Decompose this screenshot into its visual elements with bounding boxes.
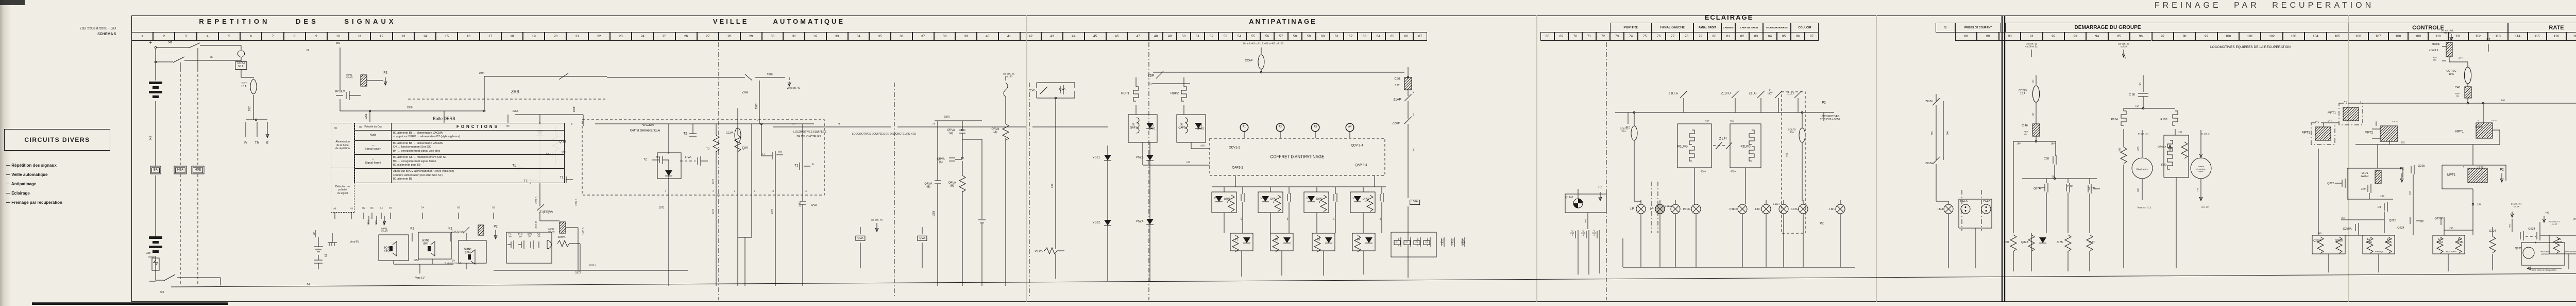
- component-label: R1LPD: [1740, 145, 1750, 149]
- component-label: CCAP: [1245, 59, 1252, 62]
- component-label: 1970: [767, 74, 772, 77]
- component-label: 1970: [944, 116, 950, 119]
- component-label: A3: [1311, 123, 1319, 132]
- component-label: P2: [1820, 222, 1823, 226]
- component-label: MPJ1 AV-AR: [346, 74, 352, 79]
- component-label: HVA: [685, 156, 691, 159]
- component-label: A18: [1200, 144, 1205, 147]
- component-label: 199: [2050, 142, 2055, 144]
- component-label: 74: [792, 122, 794, 125]
- component-label: EV F. de 0 à 3 Km/H: [445, 260, 462, 265]
- component-label: Q224: [2489, 230, 2496, 233]
- component-label: Z1AP: [1393, 98, 1401, 102]
- component-label: P2: [1598, 186, 1602, 189]
- component-label: 60s: [778, 150, 782, 153]
- component-label: VS: [1261, 198, 1264, 201]
- component-label: VEVA: [1035, 250, 1043, 253]
- component-label: Q225: [2327, 182, 2334, 185]
- component-label: 1957: [413, 260, 419, 263]
- component-label: C88: [2004, 241, 2009, 244]
- component-label: LOCOMOTIVES EQUIPEES: [793, 131, 826, 134]
- component-label: CCLFD 10A: [1788, 128, 1795, 134]
- component-label: Vers EV: [350, 241, 359, 244]
- component-label: 223A: [2361, 187, 2367, 190]
- component-label: RDP2: [1171, 92, 1179, 95]
- component-label: A8: [1380, 218, 1382, 220]
- component-label: 1973: [711, 209, 714, 214]
- component-label: P4: [1357, 239, 1360, 242]
- component-label: VS QAP1: [1148, 125, 1155, 131]
- component-label: DE DISJONCTEURS: [796, 136, 821, 139]
- component-label: 197: [2031, 112, 2034, 117]
- component-label: LOCOMOTIVES EQUIPEES DE DISJONCTEURS N 1…: [852, 133, 916, 136]
- component-label: Vers sch: [2201, 206, 2209, 209]
- component-label: C 85: [2057, 241, 2063, 244]
- component-label: 1979: [573, 106, 577, 112]
- component-label: Neutralisation: [2565, 251, 2576, 253]
- component-label: T2: [761, 153, 765, 156]
- component-label: Vers EV: [415, 277, 425, 280]
- ders-row: + Signal ferméB1 alimente C8 → fonctionn…: [355, 155, 564, 169]
- component-label: 254: [2477, 203, 2481, 205]
- component-label: VACMA: [642, 123, 654, 127]
- component-label: De sch. 2: [2201, 133, 2210, 136]
- component-label: ZMVA: [558, 236, 566, 239]
- ders-polarity-cell: + Signal fermé: [355, 155, 392, 168]
- component-label: 74: [306, 50, 309, 53]
- component-label: 491: [2509, 224, 2512, 228]
- component-label: 206: [2118, 148, 2121, 152]
- component-label: P4: [1423, 240, 1430, 245]
- component-label: EV 226B: [2385, 238, 2392, 245]
- component-label: SON1 (SF): [422, 239, 430, 246]
- component-label: Z1 LCT: [1768, 90, 1772, 96]
- component-label: HBA: [175, 167, 185, 173]
- component-label: Q230B: [2434, 217, 2443, 220]
- ders-function-cell: B1 alimente C8 → fonctionnement Son SF B…: [392, 155, 564, 168]
- component-label: L1EV: [1665, 205, 1671, 208]
- component-label: 343: [150, 136, 153, 140]
- component-label: BA: [151, 167, 160, 173]
- component-label: Z1LFD: [1721, 92, 1731, 95]
- component-label: EV 221B: [2456, 238, 2463, 245]
- component-label: 1975 B: [534, 221, 537, 229]
- component-label: 1954: [367, 220, 369, 226]
- component-label: Q PAT 3: [1581, 230, 1585, 237]
- component-label: 654A: [1701, 170, 1706, 172]
- component-label: CCT 10 A.: [241, 83, 247, 89]
- component-label: 201: [2052, 175, 2056, 178]
- component-label: 342: [168, 42, 172, 45]
- ders-polarity-cell: — Signal ouvert: [355, 141, 392, 154]
- component-label: ZRS: [511, 89, 519, 94]
- component-label: S-5P: [1395, 84, 1400, 87]
- component-label: 1: [2360, 101, 2361, 104]
- component-label: R103: [2160, 118, 2167, 121]
- ders-side-labels: Alimentation de la boîte de répétition D…: [331, 123, 354, 213]
- component-label: De sch.461 col.113, 462 et 463 col.108: [1243, 42, 1283, 44]
- ders-side-bottom: Détection de polarité du signal: [331, 168, 354, 213]
- component-label: 1955: [375, 220, 377, 226]
- component-label: 68: [314, 232, 317, 235]
- component-label: 74: [837, 122, 840, 125]
- component-label: B2: [362, 206, 365, 209]
- component-label: A6: [1287, 218, 1290, 220]
- component-label: 1 à 18: [2490, 120, 2496, 122]
- component-label: L1TH: [1791, 208, 1798, 211]
- component-label: CCVA: [726, 132, 734, 135]
- component-label: A 0: [2344, 101, 2347, 104]
- ders-function-table: Polarité du Cra FONCTIONS NulleB1 alimen…: [354, 123, 565, 183]
- component-label: 60s.: [656, 155, 661, 158]
- component-label: EV 226A: [2366, 238, 2372, 245]
- component-label: 1984: [479, 72, 484, 75]
- component-label: 650: [336, 42, 340, 45]
- component-label: Q39: [742, 147, 748, 150]
- component-label: Q225: [2515, 247, 2521, 250]
- component-label: R1LPG: [1677, 145, 1688, 149]
- component-label: 663: [1785, 153, 1788, 157]
- component-label: A19: [1585, 219, 1587, 222]
- component-label: TM: [255, 141, 260, 145]
- component-label: P3: [1317, 239, 1320, 242]
- component-label: P2: [494, 225, 497, 229]
- ders-polarity-cell: Nulle: [355, 131, 392, 140]
- component-label: Q225: [2418, 165, 2425, 168]
- component-label: A3: [350, 207, 353, 210]
- component-label: QPAT 2: [1270, 198, 1277, 204]
- component-label: Z LPI: [1719, 137, 1726, 141]
- component-label: Sens relais de récupération: [2532, 269, 2557, 272]
- component-label: 1988: [933, 211, 936, 216]
- component-label: Z1LT: [1787, 92, 1794, 95]
- component-label: P2: [1404, 240, 1411, 245]
- component-label: ZRLM: [1925, 101, 1933, 104]
- component-label: Z2(ES)VA: [451, 231, 464, 234]
- component-label: De sch. 4b1 col. 72: [2441, 29, 2453, 35]
- component-label: P1: [1235, 239, 1238, 242]
- component-label: 261: [2535, 241, 2537, 245]
- component-label: 75: [210, 56, 213, 59]
- component-label: PCLX: [1983, 200, 1990, 203]
- component-label: Q224: [2397, 227, 2404, 230]
- component-label: 253: [2409, 191, 2411, 195]
- component-label: P3: [1414, 240, 1420, 245]
- component-label: MPJ1 AV/AR: [2361, 172, 2369, 179]
- component-label: E: [266, 141, 268, 145]
- component-label: 2: [734, 189, 736, 192]
- component-label: ZVA: [742, 91, 748, 95]
- ders-function-cell: B1 alimente B8 → alimentation VACMA C4 →…: [392, 141, 564, 154]
- component-label: QPAT 4: [1363, 198, 1369, 204]
- component-label: De sch .2-1: [2138, 133, 2148, 136]
- component-label: Z1LFG: [1669, 92, 1679, 95]
- component-label: 1973 B: [582, 228, 584, 235]
- component-label: 600: [2137, 188, 2139, 192]
- component-label: EV 221A: [2437, 238, 2443, 245]
- component-label: Z2AP: [1392, 122, 1400, 125]
- component-label: 660: [1946, 131, 1948, 135]
- component-label: RSP RS: [2455, 92, 2460, 97]
- component-label: SL QAP2: [1178, 124, 1185, 130]
- component-label: 1980: [798, 202, 801, 207]
- component-label: Q87A: [2033, 187, 2041, 190]
- component-label: QAP1-2: [1232, 166, 1243, 170]
- component-label: Q87A: [2021, 241, 2028, 244]
- component-label: L1C: [1755, 208, 1760, 211]
- component-label: QRVA (B): [948, 182, 956, 188]
- component-label: 1 à 18: [2392, 121, 2397, 123]
- component-label: 1982 A: [574, 199, 577, 206]
- component-label: EV 227A: [2556, 238, 2563, 245]
- component-label: T1: [794, 164, 798, 168]
- component-label: SON1 (SO): [384, 247, 392, 253]
- component-label: VSZ4: [1136, 220, 1143, 223]
- component-label: MPT1: [2447, 173, 2455, 177]
- component-label: A14: [1149, 82, 1153, 85]
- component-label: 15 s: [2419, 221, 2424, 223]
- ders-row: NulleB1 alimente B8 → alimentation VACMA…: [355, 131, 564, 141]
- component-label: VS: [1307, 198, 1310, 201]
- component-label: C46: [2455, 86, 2460, 89]
- component-label: coupl.1: [2429, 49, 2438, 52]
- component-label: C 88: [2129, 93, 2135, 96]
- component-label: A16: [1186, 160, 1190, 163]
- component-label: C 87: [2089, 241, 2095, 244]
- component-label: Q PAT 4: [1592, 230, 1596, 237]
- component-label: MPT2: [2365, 131, 2373, 135]
- component-label: B6: [359, 125, 362, 128]
- component-label: Eclateur: [2158, 145, 2166, 148]
- component-label: C6: [457, 206, 460, 208]
- component-label: 1950: [406, 107, 412, 110]
- component-label: 24: [2125, 57, 2127, 59]
- component-label: QPAT 1: [1224, 198, 1231, 204]
- component-label: MPT2: [2302, 131, 2310, 135]
- component-label: 244: [2459, 56, 2463, 59]
- component-label: Z1(ES)VA: [539, 211, 553, 214]
- component-label: Q PAT 3: [1461, 239, 1465, 246]
- component-label: RDP1: [1121, 92, 1129, 95]
- component-label: 1977: [756, 103, 759, 109]
- component-label: C1 VA: [537, 233, 540, 238]
- component-label: P2: [410, 227, 414, 231]
- component-label: Q PAT 2: [1570, 230, 1574, 237]
- component-label: PCLX: [1960, 200, 1968, 203]
- component-label: DJ: [2378, 206, 2381, 209]
- component-label: 248: [2317, 232, 2321, 234]
- component-label: 652A: [1731, 170, 1736, 172]
- component-label: 1956: [382, 220, 385, 226]
- component-label: 1972: [575, 272, 581, 275]
- component-label: P1: [1394, 240, 1401, 245]
- component-label: 207: [2178, 131, 2182, 133]
- component-label: MPJ1 AV-AR: [548, 228, 554, 234]
- component-label: Q1 PAT: [1565, 196, 1573, 198]
- component-label: Q 87A: [2088, 187, 2096, 190]
- component-label: C46: [1394, 77, 1400, 81]
- ders-polarity-cell: [355, 169, 392, 182]
- component-label: 0: [2478, 120, 2479, 122]
- component-label: 0: [2376, 121, 2377, 123]
- component-label: Vers col. 40: [787, 87, 800, 90]
- component-label: VSZ1: [1092, 156, 1100, 159]
- component-label: B: [539, 121, 540, 124]
- component-label: R104: [2111, 118, 2117, 121]
- component-label: 1983: [770, 209, 773, 214]
- component-label: 654: [1705, 119, 1709, 122]
- ders-row: Appui sur BPEV alimentation B7 (style vi…: [355, 169, 564, 182]
- component-label: 249: [2380, 195, 2384, 197]
- component-label: B4: [380, 206, 383, 209]
- component-label: T2: [683, 132, 687, 136]
- component-label: 349: [160, 292, 164, 295]
- component-label: P2: [383, 71, 387, 75]
- component-label: T1: [523, 180, 527, 183]
- component-label: QRVA (A): [991, 128, 999, 135]
- schematic-page: 2D2 5503 à 5550 - GD SCHEMA 5 CIRCUITS D…: [0, 0, 2576, 306]
- component-label: De sch. 4a col.38 et 52: [2025, 43, 2037, 49]
- component-label: 9: [571, 122, 573, 125]
- component-label: 655: [1930, 131, 1933, 135]
- component-label: CC BA 50 A.: [235, 61, 247, 70]
- component-label: Q PAT 2: [1451, 239, 1454, 246]
- component-label: 256: [2449, 227, 2453, 229]
- component-label: P2: [2400, 167, 2403, 171]
- ders-side-top: Alimentation de la boîte de répétition: [331, 123, 354, 168]
- component-label: VSZ2: [1092, 221, 1100, 224]
- ders-function-cell: Appui sur BPEV alimentation B7 (style vi…: [392, 169, 564, 182]
- component-label: 51: [325, 254, 328, 257]
- component-label: 219: [1052, 184, 1055, 188]
- component-label: BP1EV: [335, 90, 345, 93]
- component-label: Q230A: [2343, 228, 2351, 231]
- component-label: Génératrice: [2136, 168, 2148, 170]
- component-label: Boîte DERS: [433, 116, 455, 121]
- component-label: QVA: [811, 204, 817, 207]
- component-label: P1FG: [1683, 208, 1690, 211]
- component-label: QRVA (A): [937, 158, 944, 165]
- component-label: LM1: [1829, 208, 1835, 211]
- component-label: LM4: [1938, 208, 1943, 211]
- component-label: P2: [2500, 168, 2503, 172]
- component-label: BP1 VA: [528, 233, 532, 238]
- component-label: 60s: [562, 150, 565, 153]
- component-label: A2: [1413, 91, 1415, 93]
- component-label: LP: [1630, 207, 1634, 211]
- component-label: 196: [2135, 105, 2139, 107]
- component-label: QPAT 3: [1316, 198, 1323, 204]
- component-label: CC229 10 A: [2019, 90, 2027, 96]
- component-label: 5s: [812, 163, 815, 165]
- component-label: RSP RS: [2433, 56, 2437, 61]
- component-label: P1 VA: [509, 233, 512, 238]
- component-label: Z1LG: [1749, 92, 1756, 95]
- component-label: BP1 VA: [518, 233, 523, 238]
- component-label: 198: [2016, 142, 2021, 144]
- component-label: 13: [771, 189, 774, 192]
- component-label: 652: [1730, 119, 1734, 122]
- component-label: 1: [665, 189, 667, 192]
- component-label: 1 à 18: [2477, 166, 2483, 169]
- component-label: 7: [757, 119, 758, 122]
- component-label: P2: [1626, 126, 1630, 130]
- component-label: IV: [244, 141, 247, 145]
- component-label: -51: [306, 283, 311, 286]
- component-label: SON1 (RA): [464, 248, 472, 255]
- component-label: P2: [1822, 101, 1825, 105]
- component-label: Freinage: [2375, 251, 2383, 253]
- component-label: 493: [2545, 211, 2549, 214]
- component-label: 10: [804, 189, 807, 192]
- component-label: A 0: [2315, 121, 2318, 123]
- ders-function-cell: B1 alimente B8 → alimentation VACMA si a…: [392, 131, 564, 140]
- component-label: T2: [545, 153, 549, 156]
- component-label: C8: [492, 206, 495, 208]
- component-label: 1953: [365, 114, 368, 119]
- component-label: Vers sch .2 .1: [2137, 206, 2151, 208]
- component-label: LOCOMOTIVES 2D2 5538 à 5550: [1820, 116, 1840, 122]
- component-label: 257: [2341, 216, 2345, 219]
- component-label: HSE: [193, 167, 203, 173]
- component-label: QAP 3-4: [1355, 164, 1367, 167]
- component-label: 1971: [658, 207, 664, 210]
- component-label: CC REC 10 A: [2446, 70, 2456, 76]
- component-label: A1: [333, 207, 336, 210]
- component-label: R89: [2161, 164, 2166, 167]
- component-label: T1: [560, 176, 563, 180]
- component-label: 1973 A: [589, 264, 596, 266]
- component-label: SL QAP1: [1130, 124, 1137, 130]
- component-label: 1973: [711, 179, 714, 184]
- component-label: C 85: [2067, 185, 2073, 188]
- component-label: B3: [370, 206, 374, 209]
- component-label: Q230B: [2335, 240, 2343, 243]
- component-label: P1FD: [1730, 208, 1737, 211]
- component-label: A5: [1241, 218, 1243, 220]
- component-label: 255: [2573, 217, 2576, 220]
- ders-row: — Signal ouvertB1 alimente B8 → alimenta…: [355, 141, 564, 155]
- component-label: 246: [2501, 99, 2505, 101]
- component-label: QRVA (B): [924, 183, 932, 189]
- component-label: Sens récu- pération: [2540, 250, 2550, 255]
- component-label: MPT1: [2455, 130, 2464, 134]
- component-label: 6: [754, 189, 755, 192]
- component-label: A1: [1240, 123, 1248, 132]
- component-label: 252: [2401, 141, 2405, 143]
- component-label: 101: [2197, 188, 2199, 192]
- component-label: LP: [1650, 207, 1653, 211]
- component-label: A2: [1276, 123, 1284, 132]
- component-label: A7: [1333, 218, 1336, 220]
- component-label: De sch. 4a col.10: [2118, 43, 2129, 49]
- component-label: QDV1-2: [1229, 146, 1240, 150]
- component-label: Q 39: [559, 140, 566, 144]
- component-label: QVA: [917, 236, 927, 241]
- component-label: De sch. 2-1 col.14: [2511, 203, 2521, 207]
- component-label: B8: [506, 124, 510, 127]
- component-label: Vers sch.2-1 col.14: [2549, 220, 2560, 225]
- component-label: L1CT: [1773, 203, 1780, 206]
- component-label: 74: [932, 122, 935, 125]
- component-label: VS QAP2: [1197, 125, 1204, 131]
- component-label: B7: [389, 206, 392, 209]
- component-label: LOCOMOTIVES EQUIPEES DE LA RECUPERATION: [2210, 45, 2291, 50]
- component-label: T2: [706, 148, 709, 151]
- component-label: VS: [1353, 198, 1357, 201]
- component-label: Coffret télémécanique: [630, 129, 660, 133]
- component-label: 0: [2463, 166, 2464, 169]
